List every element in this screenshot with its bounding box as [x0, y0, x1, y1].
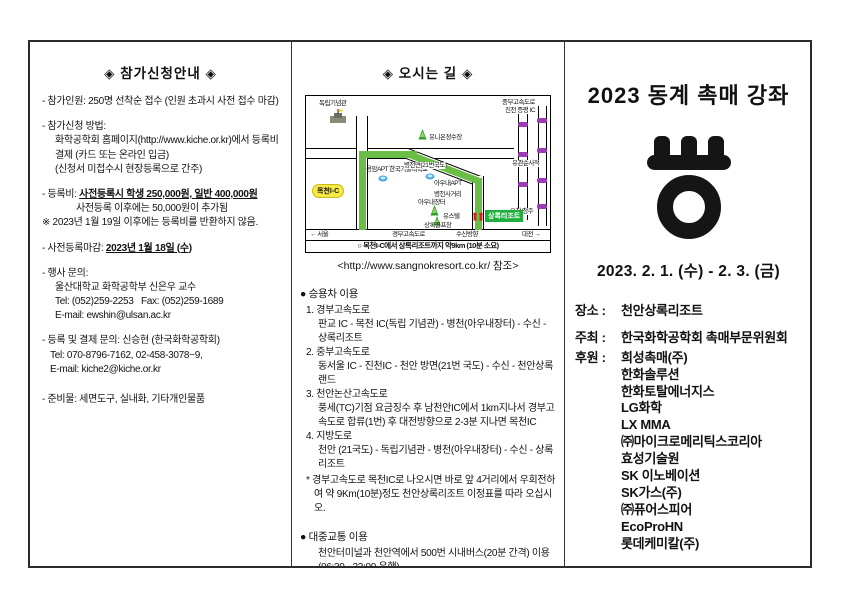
car-directions-header: ● 승용차 이용 [300, 286, 556, 301]
map-label-water-plant: 유니온정수장 [429, 134, 462, 141]
registration-method-line4: (신청서 미접수시 현장등록으로 간주) [42, 163, 279, 177]
registration-capacity: - 참가인원: 250명 선착순 접수 (인원 초과시 사전 접수 마감) [42, 95, 279, 109]
catalysis-society-logo [629, 136, 749, 239]
event-info: 장소 : 천안상록리조트 주최 : 한국화학공학회 촉매부문위원회 후원 : 희… [575, 303, 802, 552]
logo-bar [654, 136, 670, 156]
supplies: - 준비물: 세면도구, 실내화, 기타개인물품 [42, 393, 279, 407]
registration-method-line2: 화학공학회 홈페이지(http://www.kiche.or.kr)에서 등록비 [42, 134, 279, 148]
bridge-marker [518, 152, 528, 157]
bridge-marker [518, 182, 528, 187]
sponsor-row: SK가스(주) [575, 485, 802, 502]
registration-fee-line3: ※ 2023년 1월 19일 이후에는 등록비를 반환하지 않음. [42, 216, 279, 230]
logo-bar [681, 136, 697, 156]
sponsor-row: SK 이노베이션 [575, 468, 802, 485]
registration-panel: ◈ 참가신청안내 ◈ - 참가인원: 250명 선착순 접수 (인원 초과시 사… [30, 42, 292, 566]
logo-bar [708, 136, 724, 156]
sponsor-item: LG화학 [621, 400, 662, 417]
registration-deadline-date: 2023년 1월 18일 (수) [106, 243, 192, 254]
route-segment-down [475, 178, 482, 230]
registration-deadline: - 사전등록마감: 2023년 1월 18일 (수) [42, 242, 279, 256]
bridge-marker [537, 118, 547, 123]
sponsor-item: 한화솔루션 [621, 367, 679, 384]
sponsor-item: ㈜퓨어스피어 [621, 502, 692, 519]
pond-icon [425, 173, 435, 180]
car-route-4: 4. 지방도로 천안 (21국도) - 독립기념관 - 병천(아우내장터) - … [306, 430, 556, 472]
registration-fee: - 등록비: 사전등록시 학생 250,000원, 일반 400,000원 사전… [42, 188, 279, 231]
map-label-jungbu-expressway: 중부고속도로 [502, 99, 535, 106]
sponsor-row: 한화솔루션 [575, 367, 802, 384]
venue-label: 장소 : [575, 303, 621, 320]
car-route-note: * 경부고속도로 목천IC로 나오시면 바로 앞 4거리에서 우회전하여 약 9… [306, 474, 556, 516]
sponsor-item: 희성촉매(주) [621, 350, 687, 367]
payment-contact: - 등록 및 결제 문의: 신승현 (한국화학공학회) Tel: 070-879… [42, 334, 279, 377]
map-label-gyeongbu: 경부고속도로 [392, 231, 425, 238]
car-route-1: 1. 경부고속도로 판교 IC - 목천 IC(독립 기념관) - 병천(아우내… [306, 304, 556, 346]
map-label-route21: 병천면(21번국도) [404, 162, 446, 169]
sponsor-row: 후원 : 희성촉매(주) [575, 350, 802, 367]
visitors-icon [472, 212, 484, 221]
sponsor-item: 한화토탈에너지스 [621, 384, 714, 401]
sponsor-item: 효성기술원 [621, 451, 679, 468]
registration-fee-line2: 사전등록 이후에는 50,000원이 추가됨 [42, 202, 279, 216]
map-label-seoul: ← 서울 [310, 231, 328, 238]
water-plant-icon [418, 129, 427, 140]
map-label-jungbu-ic: 진천 증평 IC [505, 107, 535, 114]
bridge-marker [537, 178, 547, 183]
sponsor-row: ㈜퓨어스피어 [575, 502, 802, 519]
map-label-independence-hall: 독립기념관 [319, 100, 346, 107]
sponsor-item: EcoProHN [621, 519, 683, 536]
sponsor-row: 롯데케미칼(주) [575, 536, 802, 553]
sponsor-item: LX MMA [621, 417, 670, 434]
market-tree-icon [430, 205, 439, 216]
map-label-aunae-apt: 아우내APT [434, 180, 462, 187]
sponsor-row: ㈜마이크로메리틱스코리아 [575, 434, 802, 451]
sponsor-row: 한화토탈에너지스 [575, 384, 802, 401]
logo-crossbar [647, 155, 731, 170]
directions-panel: ◈ 오시는 길 ◈ [292, 42, 565, 566]
registration-method-line3: 결제 (카드 또는 온라인 입금) [42, 149, 279, 163]
location-map: 독립기념관 중부고속도로 진천 증평 IC 유관순사적 오창/청주 목천I-C … [305, 95, 551, 253]
host-label: 주최 : [575, 330, 621, 347]
registration-fee-amounts: 사전등록시 학생 250,000원, 일반 400,000원 [79, 189, 257, 200]
event-dates: 2023. 2. 1. (수) - 2. 3. (금) [575, 259, 802, 281]
event-contact: - 행사 문의: 울산대학교 화학공학부 신은우 교수 Tel: (052)25… [42, 267, 279, 324]
registration-fee-line1: - 등록비: 사전등록시 학생 250,000원, 일반 400,000원 [42, 188, 279, 202]
registration-method: - 참가신청 방법: 화학공학회 홈페이지(http://www.kiche.o… [42, 120, 279, 177]
sponsor-row: EcoProHN [575, 519, 802, 536]
bridge-marker [537, 204, 547, 209]
host-value: 한국화학공학회 촉매부문위원회 [621, 330, 788, 347]
map-label-byeongcheon-junction: 병천사거리 [434, 191, 461, 198]
host-row: 주최 : 한국화학공학회 촉매부문위원회 [575, 330, 802, 347]
route-segment-left [359, 152, 366, 230]
map-label-golf: 상록골프장 [424, 222, 451, 229]
event-contact-email: E-mail: ewshin@ulsan.ac.kr [42, 309, 279, 323]
resort-url: <http://www.sangnokresort.co.kr/ 참조> [300, 258, 556, 273]
sponsor-row: 효성기술원 [575, 451, 802, 468]
bridge-marker [518, 122, 528, 127]
bridge-marker [537, 148, 547, 153]
venue-row: 장소 : 천안상록리조트 [575, 303, 802, 320]
car-route-2: 2. 중부고속도로 동서울 IC - 진천IC - 천안 방면(21번 국도) … [306, 346, 556, 388]
brochure-page: ◈ 참가신청안내 ◈ - 참가인원: 250명 선착순 접수 (인원 초과시 사… [28, 40, 812, 568]
transit-header: ● 대중교통 이용 [300, 529, 556, 544]
registration-title: ◈ 참가신청안내 ◈ [42, 62, 279, 82]
logo-bars [654, 136, 724, 156]
sponsor-item: SK 이노베이션 [621, 468, 700, 485]
map-label-susin: 수신방향 [456, 231, 478, 238]
map-label-youstel: 유스텔 [443, 213, 459, 220]
transit-desc: 천안터미널과 천안역에서 500번 시내버스(20분 간격) 이용 (06:30… [306, 547, 556, 566]
car-route-3: 3. 천안논산고속도로 풍세(TC)기점 요금징수 후 남천안IC에서 1km지… [306, 388, 556, 430]
map-label-daejeon: 대전 → [522, 231, 540, 238]
event-title: 2023 동계 촉매 강좌 [575, 78, 802, 110]
sponsor-label: 후원 : [575, 350, 621, 367]
map-label-yugwansun-site: 유관순사적 [512, 160, 539, 167]
map-label-resort: 상록리조트 [485, 210, 523, 222]
title-panel: 2023 동계 촉매 강좌 2023. 2. 1. (수) - 2. 3. (금… [565, 42, 810, 566]
pond-icon [378, 175, 388, 182]
sponsor-item: SK가스(주) [621, 485, 682, 502]
map-label-aunae-market: 아우내장터 [418, 199, 445, 206]
sponsor-item: 롯데케미칼(주) [621, 536, 699, 553]
map-caption: ○ 목천I-C에서 상록리조트까지 약9km (10분 소요) [306, 240, 550, 251]
map-label-mokcheon-ic: 목천I-C [312, 184, 344, 198]
venue-value: 천안상록리조트 [621, 303, 703, 320]
sponsor-row: LX MMA [575, 417, 802, 434]
logo-ring [657, 175, 721, 239]
registration-capacity-text: - 참가인원: 250명 선착순 접수 (인원 초과시 사전 접수 마감) [42, 96, 279, 107]
sponsor-row: LG화학 [575, 400, 802, 417]
payment-contact-email: E-mail: kiche2@kiche.or.kr [42, 363, 279, 377]
directions-title: ◈ 오시는 길 ◈ [300, 62, 556, 82]
registration-method-line1: - 참가신청 방법: [42, 120, 279, 134]
independence-hall-icon [328, 108, 348, 124]
sponsor-item: ㈜마이크로메리틱스코리아 [621, 434, 762, 451]
